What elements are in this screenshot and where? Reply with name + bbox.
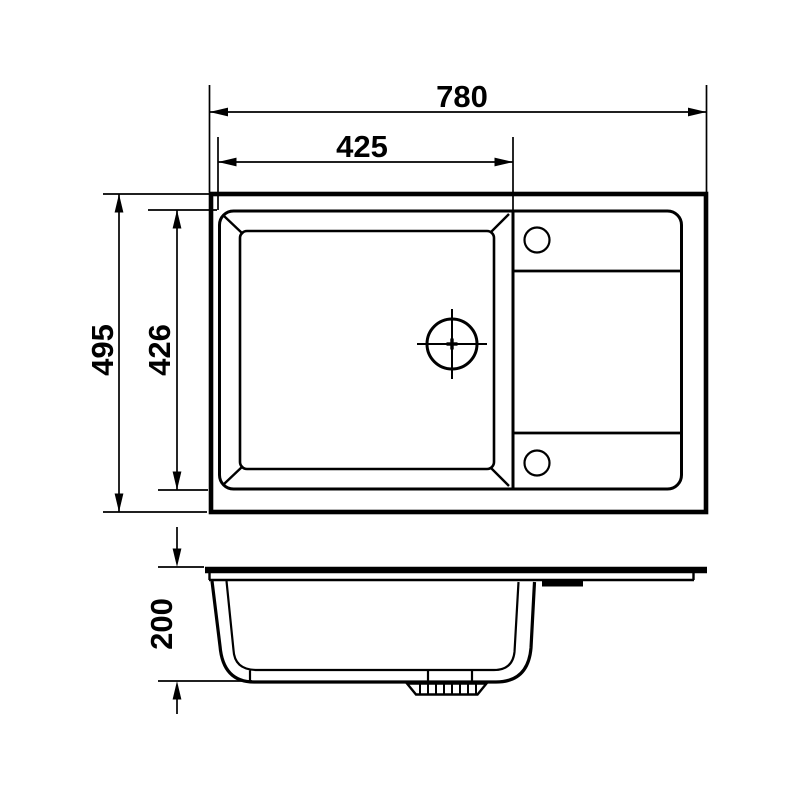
dim-495-label: 495 <box>85 324 120 376</box>
top-view <box>211 194 706 512</box>
dim-425-arrow-right <box>495 158 514 167</box>
sink-outer-edge <box>211 194 706 512</box>
dimension-bowl-height: 200 <box>144 527 252 714</box>
dim-780-arrow-left <box>210 108 229 117</box>
bowl-outer-profile <box>212 581 535 682</box>
dim-425-arrow-left <box>218 158 237 167</box>
dimension-overall-width: 780 <box>210 79 707 192</box>
dim-495-arrow-top <box>115 194 124 213</box>
bowl-bottom-ticks <box>250 671 472 682</box>
dim-495-arrow-bottom <box>115 494 124 513</box>
faucet-hole-top <box>525 228 550 253</box>
drawing-sheet: 780 425 495 426 <box>0 0 800 800</box>
side-view <box>205 570 707 695</box>
dim-780-label: 780 <box>436 79 488 114</box>
rim-profile <box>209 573 694 580</box>
dim-780-arrow-right <box>688 108 707 117</box>
drain-fitting-hatch <box>420 684 476 695</box>
drain-fitting-outline <box>407 684 487 695</box>
dim-426-arrow-bottom <box>173 472 182 491</box>
dim-425-label: 425 <box>336 129 388 164</box>
dim-426-arrow-top <box>173 210 182 229</box>
dim-200-label: 200 <box>144 598 179 650</box>
dimension-bowl-depth: 426 <box>142 210 217 490</box>
sink-rim-inner-edge <box>220 211 682 489</box>
dimension-bowl-width: 425 <box>218 129 513 212</box>
dim-200-arrow-bottom <box>173 681 182 700</box>
bowl-bottom-edge <box>240 231 494 469</box>
bowl-inner-profile <box>227 581 519 670</box>
faucet-hole-bottom <box>525 451 550 476</box>
dim-426-label: 426 <box>142 324 177 376</box>
dim-200-arrow-top <box>173 549 182 568</box>
drain-mark <box>417 309 487 379</box>
bowl-corner-bevels <box>224 214 509 486</box>
drainboard-section-fill <box>542 580 583 587</box>
sink-technical-drawing: 780 425 495 426 <box>0 0 800 800</box>
